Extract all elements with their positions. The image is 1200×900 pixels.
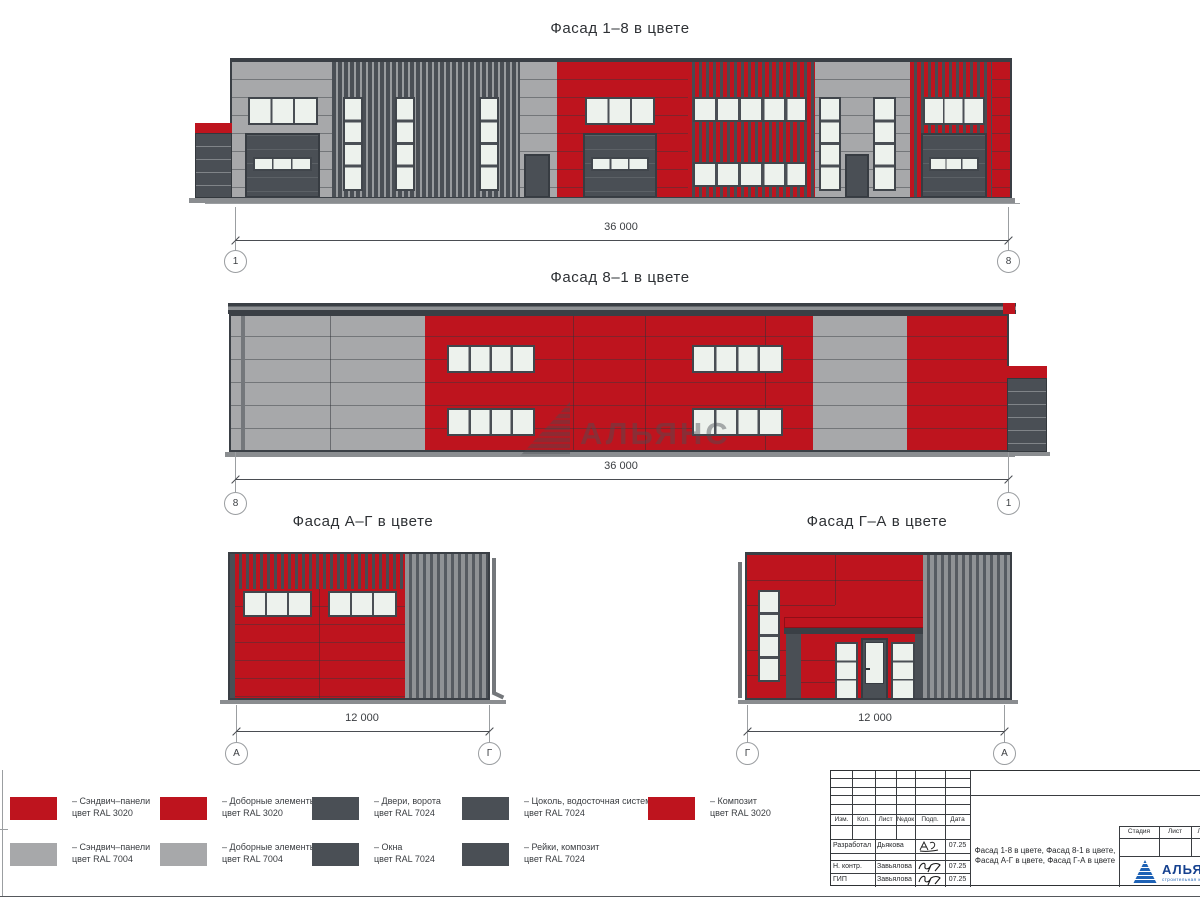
stamp-doc-title: Фасад 1-8 в цвете, Фасад 8-1 в цвете, Фа… [972, 829, 1118, 883]
stamp-role: Разработал [833, 842, 871, 849]
stamp-col-izm: Изм. [831, 816, 852, 823]
annex-body [195, 133, 232, 198]
legend-label: – Сэндвич–панелицвет RAL 7004 [72, 842, 150, 865]
facade-8-1-title: Фасад 8–1 в цвете [420, 269, 820, 286]
axis-bubble: А [225, 742, 248, 765]
legend-label: – Доборные элементыцвет RAL 3020 [222, 796, 316, 819]
legend-swatch [160, 843, 207, 866]
stamp-list: Лист [1159, 828, 1191, 835]
plinth [225, 452, 1015, 457]
legend-swatch [312, 843, 359, 866]
stamp-name: Завьялова [877, 863, 912, 870]
stamp-name: Завьялова [877, 876, 912, 883]
parapet-red-end [1003, 303, 1015, 314]
legend-label: – Доборные элементыцвет RAL 7004 [222, 842, 316, 865]
ground-line [205, 203, 1020, 204]
axis-bubble: 1 [997, 492, 1020, 515]
stamp-date: 07.25 [945, 842, 970, 849]
signature [917, 840, 943, 852]
legend-swatch [462, 843, 509, 866]
annex-body [1007, 378, 1047, 452]
downspout-elbow [492, 691, 505, 700]
building-outline [228, 552, 490, 700]
facade-g-a-title: Фасад Г–А в цвете [677, 513, 1077, 530]
stamp-stadia: Стадия [1119, 828, 1159, 835]
stamp-date: 07.25 [945, 863, 970, 870]
stamp-role: Н. контр. [833, 863, 862, 870]
building-outline [745, 552, 1012, 700]
legend-swatch [462, 797, 509, 820]
legend-label: – Двери, воротацвет RAL 7024 [374, 796, 441, 819]
legend-swatch [648, 797, 695, 820]
facade-g-a-drawing [738, 550, 1018, 706]
dimension-text: 12 000 [262, 712, 462, 724]
legend-label: – Цоколь, водосточная системацвет RAL 70… [524, 796, 656, 819]
watermark-text: АЛЬЯНС [580, 416, 731, 452]
downspout [738, 562, 742, 698]
stamp-col-list: Лист [875, 816, 896, 823]
axis-bubble: Г [478, 742, 501, 765]
sheet-frame-left [2, 770, 3, 896]
signature [917, 861, 943, 873]
axis-bubble: 8 [224, 492, 247, 515]
stamp-col-podp: Подп. [915, 816, 945, 823]
stamp-listov: Листов [1191, 828, 1200, 835]
dimension-text: 12 000 [775, 712, 975, 724]
annex-red-cap [195, 123, 232, 133]
stamp-col-data: Дата [945, 816, 970, 823]
downspout [492, 558, 496, 693]
sheet-frame-bottom [0, 896, 1200, 897]
drawing-sheet: Фасад 1–8 в цвете Фасад 8–1 в цвете Фаса… [0, 0, 1200, 900]
dimension-text: 36 000 [521, 460, 721, 472]
title-block: Изм. Кол. Лист №док Подп. Дата Разработа… [830, 770, 1200, 886]
legend-swatch [10, 843, 57, 866]
legend-swatch [10, 797, 57, 820]
stamp-name: Дьякова [877, 842, 904, 849]
legend-label: – Сэндвич–панелицвет RAL 3020 [72, 796, 150, 819]
stamp-col-ndok: №док [895, 816, 916, 823]
sheet-frame-tick [0, 829, 8, 830]
company-logo-triangle [1133, 860, 1157, 884]
building-outline [230, 58, 1012, 199]
stamp-role: ГИП [833, 876, 847, 883]
axis-bubble: 1 [224, 250, 247, 273]
legend-label: – Композитцвет RAL 3020 [710, 796, 771, 819]
parapet [228, 303, 1016, 314]
facade-1-8-drawing [195, 57, 1015, 209]
stamp-col-kol: Кол. [852, 816, 875, 823]
plinth [1003, 452, 1050, 456]
plinth [738, 700, 1018, 704]
axis-bubble: Г [736, 742, 759, 765]
company-logo-text: АЛЬЯНС [1162, 862, 1200, 877]
legend-label: – Окнацвет RAL 7024 [374, 842, 435, 865]
facade-1-8-title: Фасад 1–8 в цвете [420, 20, 820, 37]
legend-swatch [160, 797, 207, 820]
company-logo-subtext: строительная компания [1162, 877, 1200, 882]
plinth [220, 700, 506, 704]
axis-bubble: А [993, 742, 1016, 765]
facade-a-g-drawing [228, 550, 500, 706]
legend-label: – Рейки, композитцвет RAL 7024 [524, 842, 599, 865]
stamp-date: 07.25 [945, 876, 970, 883]
facade-a-g-title: Фасад А–Г в цвете [163, 513, 563, 530]
annex-red-cap [1007, 366, 1047, 378]
axis-bubble: 8 [997, 250, 1020, 273]
legend-swatch [312, 797, 359, 820]
dimension-text: 36 000 [521, 221, 721, 233]
signature [917, 874, 943, 886]
